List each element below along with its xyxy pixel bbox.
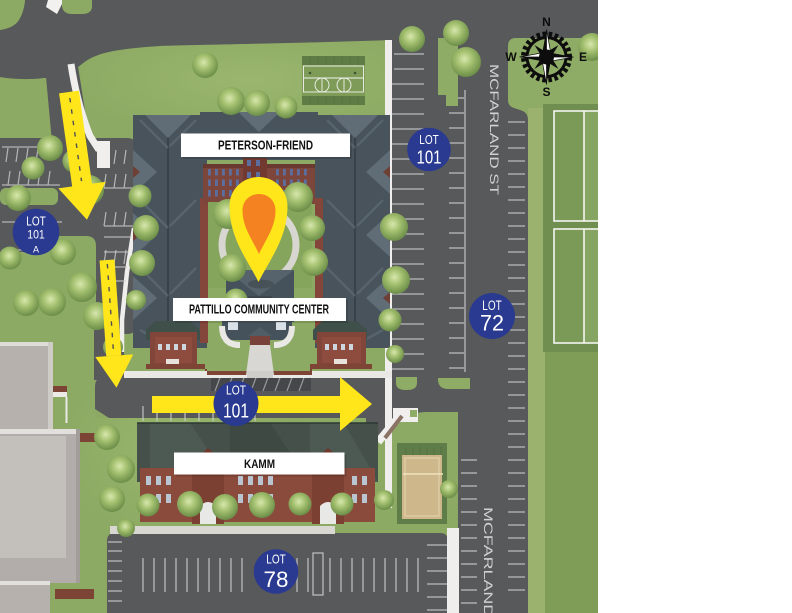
svg-text:MCFARLAND ST: MCFARLAND ST: [481, 507, 493, 613]
svg-text:101: 101: [417, 147, 442, 168]
svg-text:78: 78: [264, 567, 289, 592]
svg-text:KAMM: KAMM: [244, 457, 275, 471]
svg-text:PETERSON-FRIEND: PETERSON-FRIEND: [218, 139, 313, 153]
svg-text:S: S: [542, 85, 550, 99]
svg-text:E: E: [579, 50, 587, 64]
svg-text:PATTILLO COMMUNITY CENTER: PATTILLO COMMUNITY CENTER: [189, 303, 329, 317]
svg-text:101: 101: [27, 228, 45, 242]
svg-text:N: N: [542, 15, 551, 29]
svg-text:LOT: LOT: [26, 215, 46, 229]
svg-text:A: A: [33, 245, 39, 255]
svg-text:72: 72: [480, 311, 504, 336]
svg-text:LOT: LOT: [266, 553, 286, 567]
svg-text:LOT: LOT: [419, 132, 439, 147]
svg-text:MCFARLAND ST: MCFARLAND ST: [487, 64, 499, 195]
svg-text:LOT: LOT: [226, 384, 246, 398]
svg-text:W: W: [505, 50, 517, 64]
svg-text:101: 101: [223, 401, 249, 423]
